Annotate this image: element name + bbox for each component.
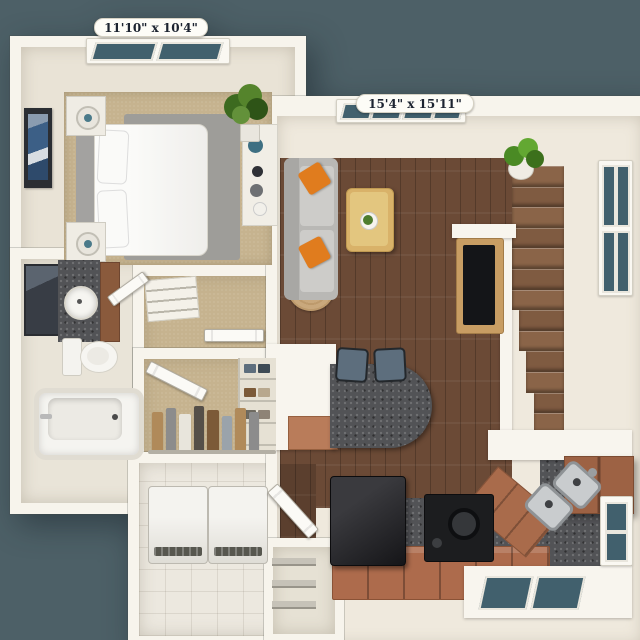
linen-shelves bbox=[144, 276, 199, 322]
clothes-item bbox=[235, 408, 246, 452]
folded-clothes bbox=[244, 364, 256, 373]
dryer-vent bbox=[214, 547, 262, 556]
tub-drain bbox=[112, 414, 118, 420]
wall-art bbox=[24, 108, 52, 188]
clothes-item bbox=[179, 414, 191, 452]
folded-clothes bbox=[244, 388, 256, 397]
sink-drain bbox=[77, 299, 82, 304]
window-pane bbox=[478, 576, 533, 610]
vanity-mirror bbox=[24, 264, 62, 336]
wall-art-canvas bbox=[28, 114, 48, 180]
plant-leaf bbox=[526, 150, 544, 168]
sink-drain bbox=[571, 477, 582, 488]
window-pane bbox=[602, 165, 616, 227]
bar-stool bbox=[373, 347, 407, 383]
clothes-item bbox=[222, 416, 232, 452]
decor-bowl bbox=[252, 166, 263, 177]
bar-stool bbox=[335, 347, 369, 383]
window-pane bbox=[90, 42, 157, 61]
kitchen-bottom-wall bbox=[464, 566, 632, 618]
pantry-shelf bbox=[272, 558, 316, 566]
lamp-accent bbox=[84, 240, 92, 248]
stair-step bbox=[534, 393, 564, 414]
toilet-tank bbox=[62, 338, 82, 376]
stair-step bbox=[526, 372, 564, 393]
potted-plant-stairs bbox=[502, 138, 546, 178]
plant-leaf bbox=[232, 106, 250, 124]
floor-plan: 11'10" x 10'4" 15'4" x 15'11" bbox=[0, 0, 640, 640]
tv-screen bbox=[463, 245, 495, 325]
stove-burner bbox=[432, 538, 442, 548]
window-pane bbox=[602, 231, 616, 293]
toilet bbox=[80, 341, 118, 373]
window-pane bbox=[530, 576, 585, 610]
pantry-shelf bbox=[272, 580, 316, 588]
window-pane bbox=[616, 165, 630, 227]
dryer bbox=[208, 486, 268, 564]
window-pane bbox=[156, 42, 223, 61]
clothes-item bbox=[249, 412, 259, 452]
hanging-clothes bbox=[152, 406, 272, 452]
sink-faucet bbox=[588, 468, 597, 477]
kitchen-side-window bbox=[600, 496, 633, 566]
stair-step bbox=[512, 290, 564, 311]
toilet-seat bbox=[87, 347, 109, 365]
sofa-backrest bbox=[284, 158, 299, 300]
stair-step bbox=[512, 269, 564, 290]
tv-wall bbox=[452, 224, 516, 238]
sink-drain bbox=[543, 499, 554, 510]
table-plant bbox=[363, 215, 373, 225]
washer bbox=[148, 486, 208, 564]
table-lamp bbox=[76, 106, 100, 130]
potted-plant-bedroom bbox=[224, 84, 272, 132]
hallway-door bbox=[204, 329, 264, 342]
bed-pillow bbox=[97, 129, 130, 184]
clothes-item bbox=[207, 410, 219, 452]
decor-bowl bbox=[250, 184, 263, 197]
bedroom-window bbox=[86, 38, 230, 64]
washer-vent bbox=[154, 547, 202, 556]
stair-step bbox=[512, 207, 564, 228]
decor-dish bbox=[253, 202, 267, 216]
window-pane bbox=[605, 502, 628, 532]
stair-step bbox=[526, 351, 564, 372]
staircase bbox=[512, 166, 564, 434]
window-pane bbox=[616, 231, 630, 293]
window-pane bbox=[605, 532, 628, 562]
lamp-accent bbox=[84, 114, 92, 122]
stair-step bbox=[519, 331, 564, 352]
stair-step bbox=[512, 228, 564, 249]
clothes-item bbox=[166, 408, 176, 452]
stair-step bbox=[512, 187, 564, 208]
clothes-item bbox=[194, 406, 204, 452]
folded-clothes bbox=[258, 364, 270, 373]
bedroom-dimensions-label: 11'10" x 10'4" bbox=[94, 18, 208, 37]
refrigerator bbox=[330, 476, 406, 566]
tub-faucet bbox=[40, 414, 52, 419]
clothes-item bbox=[152, 412, 163, 452]
living-room-side-window bbox=[598, 160, 633, 296]
bathtub-basin bbox=[48, 398, 122, 440]
table-lamp bbox=[76, 232, 100, 256]
closet-rail bbox=[148, 450, 276, 454]
stair-step bbox=[519, 310, 564, 331]
pantry-shelf bbox=[272, 601, 316, 609]
cooking-pot bbox=[448, 508, 480, 540]
floor-plan-image: 11'10" x 10'4" 15'4" x 15'11" bbox=[0, 0, 640, 640]
folded-clothes bbox=[258, 388, 270, 397]
stair-step bbox=[512, 248, 564, 269]
living-room-dimensions-label: 15'4" x 15'11" bbox=[356, 94, 474, 113]
